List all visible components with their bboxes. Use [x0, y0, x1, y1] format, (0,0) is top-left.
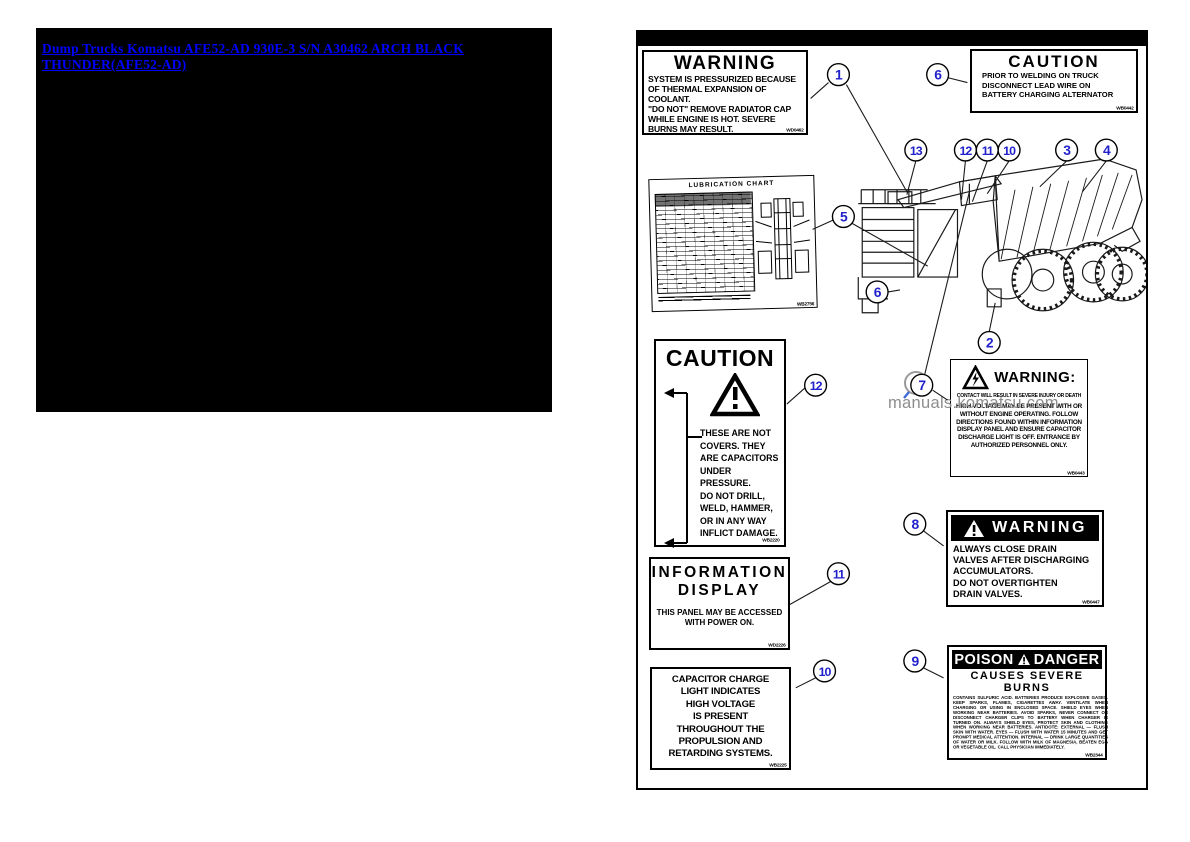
- callout-1[interactable]: 1: [828, 64, 850, 86]
- callout-8[interactable]: 8: [904, 513, 926, 535]
- figure-overlay: 161312111034562127811910: [638, 32, 1146, 788]
- leader-lines: [787, 78, 1106, 688]
- callout-9[interactable]: 9: [904, 650, 926, 672]
- svg-text:11: 11: [982, 144, 994, 158]
- svg-text:13: 13: [910, 144, 923, 158]
- callout-6[interactable]: 6: [927, 64, 949, 86]
- svg-text:11: 11: [833, 568, 845, 582]
- callout-11[interactable]: 11: [976, 139, 998, 161]
- callout-7[interactable]: 7: [911, 374, 933, 396]
- page: Dump Trucks Komatsu AFE52-AD 930E-3 S/N …: [0, 0, 1190, 842]
- callout-6[interactable]: 6: [866, 281, 888, 303]
- svg-text:10: 10: [1003, 144, 1016, 158]
- svg-text:12: 12: [810, 379, 823, 393]
- decal-figure-panel: WARNING SYSTEM IS PRESSURIZED BECAUSE OF…: [636, 30, 1148, 790]
- nav-panel: Dump Trucks Komatsu AFE52-AD 930E-3 S/N …: [36, 28, 552, 412]
- callout-3[interactable]: 3: [1056, 139, 1078, 161]
- svg-text:12: 12: [960, 144, 973, 158]
- callout-layer: 161312111034562127811910: [805, 64, 1118, 682]
- callout-12[interactable]: 12: [805, 374, 827, 396]
- callout-5[interactable]: 5: [832, 206, 854, 228]
- callout-10[interactable]: 10: [998, 139, 1020, 161]
- svg-text:10: 10: [819, 665, 832, 679]
- callout-12[interactable]: 12: [955, 139, 977, 161]
- callout-13[interactable]: 13: [905, 139, 927, 161]
- callout-10[interactable]: 10: [814, 660, 836, 682]
- manual-title-link[interactable]: Dump Trucks Komatsu AFE52-AD 930E-3 S/N …: [42, 41, 546, 73]
- callout-2[interactable]: 2: [978, 332, 1000, 354]
- callout-4[interactable]: 4: [1095, 139, 1117, 161]
- callout-11[interactable]: 11: [828, 563, 850, 585]
